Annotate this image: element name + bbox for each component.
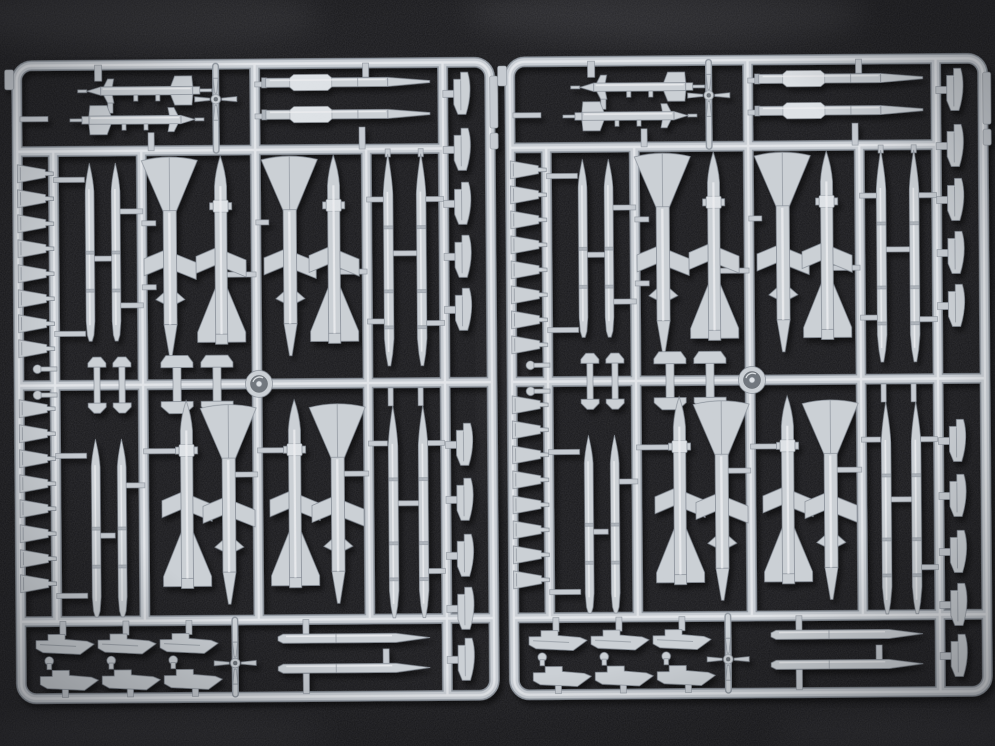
photo-of-model-sprues [0, 0, 995, 746]
photo-canvas [0, 0, 995, 746]
vignette [0, 0, 995, 746]
